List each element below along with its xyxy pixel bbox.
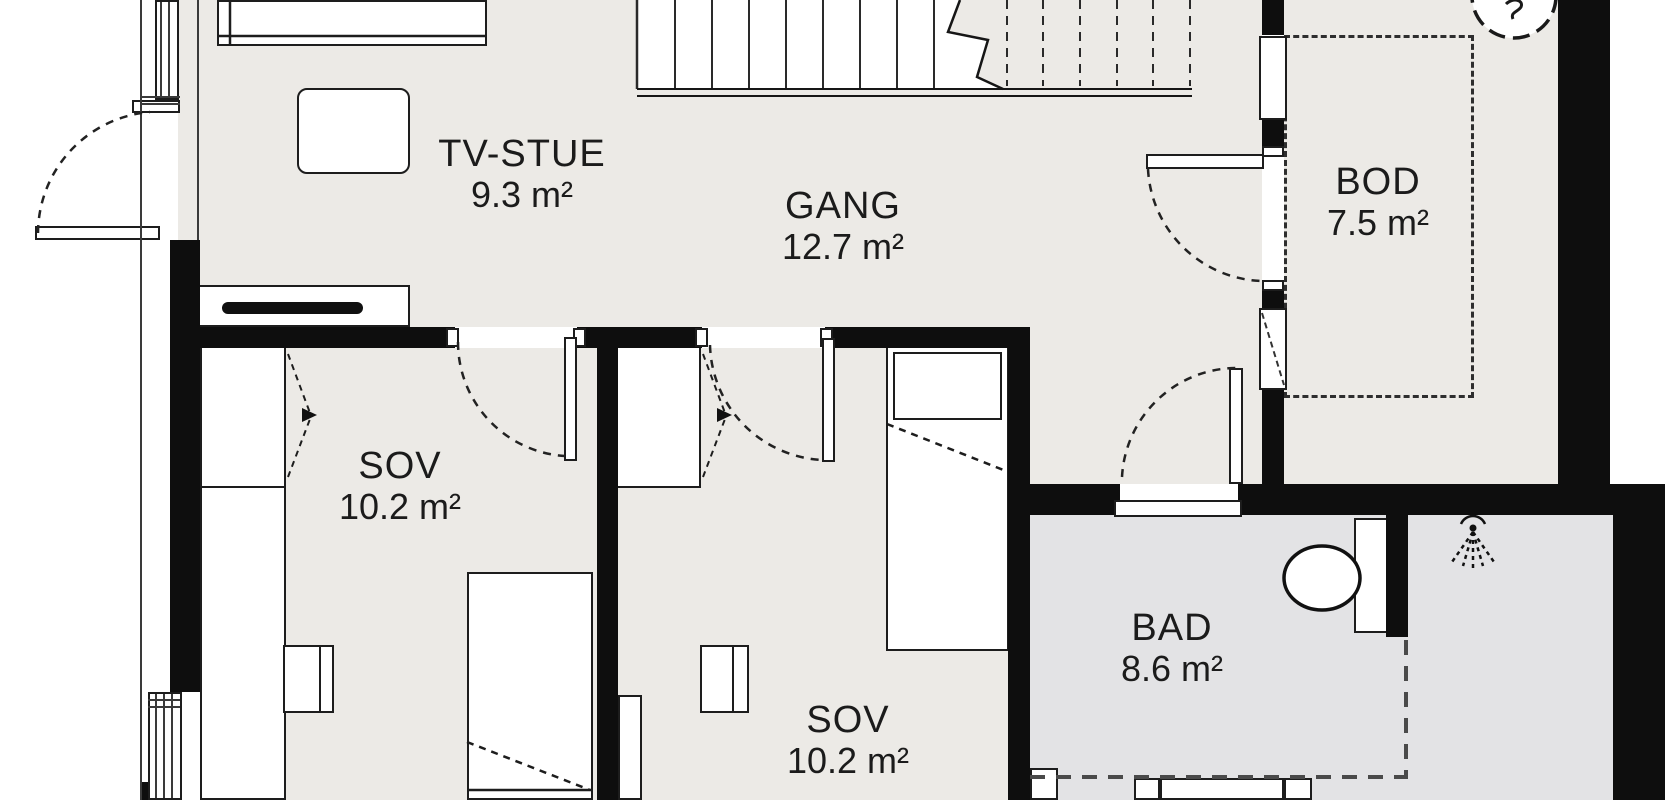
desk-with-chair	[283, 645, 334, 713]
wall-gang-bod	[1262, 388, 1284, 486]
room-name: BAD	[1121, 608, 1223, 648]
room-name: SOV	[787, 700, 909, 740]
wardrobe	[613, 345, 701, 488]
room-area: 8.6 m²	[1121, 648, 1223, 690]
vanity-cabinet	[1284, 778, 1312, 800]
room-area: 9.3 m²	[438, 174, 605, 216]
room-name: BOD	[1327, 162, 1429, 202]
toilet-cistern	[1354, 518, 1389, 633]
door-leaf-sov-middle	[822, 338, 835, 462]
room-name: GANG	[782, 186, 904, 226]
vanity-cabinet	[1134, 778, 1160, 800]
wall-shower-stub	[1386, 515, 1408, 637]
door-arc-exterior	[38, 112, 150, 233]
door-jamb	[1262, 146, 1284, 157]
door-jamb	[1262, 280, 1284, 291]
floor-plan: TV-STUE 9.3 m² GANG 12.7 m² BOD 7.5 m² S…	[0, 0, 1670, 800]
wall	[825, 327, 1030, 348]
tv	[222, 302, 363, 314]
door-jamb	[132, 100, 180, 113]
room-name: TV-STUE	[438, 134, 605, 174]
room-area: 10.2 m²	[339, 486, 461, 528]
door-leaf-sov-left	[564, 337, 577, 461]
wall-exterior-left	[170, 240, 200, 692]
wall	[577, 327, 702, 348]
wall-exterior-right	[1558, 0, 1610, 486]
wall	[1030, 484, 1120, 515]
room-area: 10.2 m²	[787, 740, 909, 782]
wall-exterior-right	[1613, 484, 1665, 800]
wall-niche	[1259, 36, 1287, 120]
window-frame	[148, 692, 182, 800]
wardrobe	[200, 345, 286, 800]
room-label-bod: BOD 7.5 m²	[1327, 162, 1429, 244]
door-leaf-bad	[1229, 368, 1243, 484]
window-frame	[155, 0, 179, 100]
room-label-sov-middle: SOV 10.2 m²	[787, 700, 909, 782]
door-leaf-exterior	[35, 226, 160, 240]
bed	[467, 572, 593, 800]
room-label-sov-left: SOV 10.2 m²	[339, 446, 461, 528]
door-threshold-bad	[1114, 500, 1242, 517]
room-label-tvstue: TV-STUE 9.3 m²	[438, 134, 605, 216]
sofa-table	[297, 88, 410, 174]
wall	[1238, 484, 1665, 515]
desk-with-chair	[700, 645, 749, 713]
wall-niche	[1259, 308, 1287, 390]
wall-sov-bad	[1008, 327, 1030, 800]
door-leaf-bod	[1146, 154, 1264, 169]
wall	[185, 327, 455, 348]
room-area: 7.5 m²	[1327, 202, 1429, 244]
door-jamb	[695, 328, 708, 347]
wall-gang-bod	[1262, 0, 1284, 35]
room-area: 12.7 m²	[782, 226, 904, 268]
bed	[217, 0, 487, 46]
room-label-bad: BAD 8.6 m²	[1121, 608, 1223, 690]
room-name: SOV	[339, 446, 461, 486]
bathroom-fixture	[1030, 768, 1058, 800]
floor-corridor	[1030, 327, 1262, 484]
radiator	[618, 695, 642, 800]
door-jamb	[446, 328, 459, 347]
floor-bad	[1030, 515, 1613, 800]
room-label-gang: GANG 12.7 m²	[782, 186, 904, 268]
pillow	[893, 352, 1002, 420]
wall-sov-divider	[597, 327, 618, 800]
vanity-cabinet	[1160, 778, 1284, 800]
